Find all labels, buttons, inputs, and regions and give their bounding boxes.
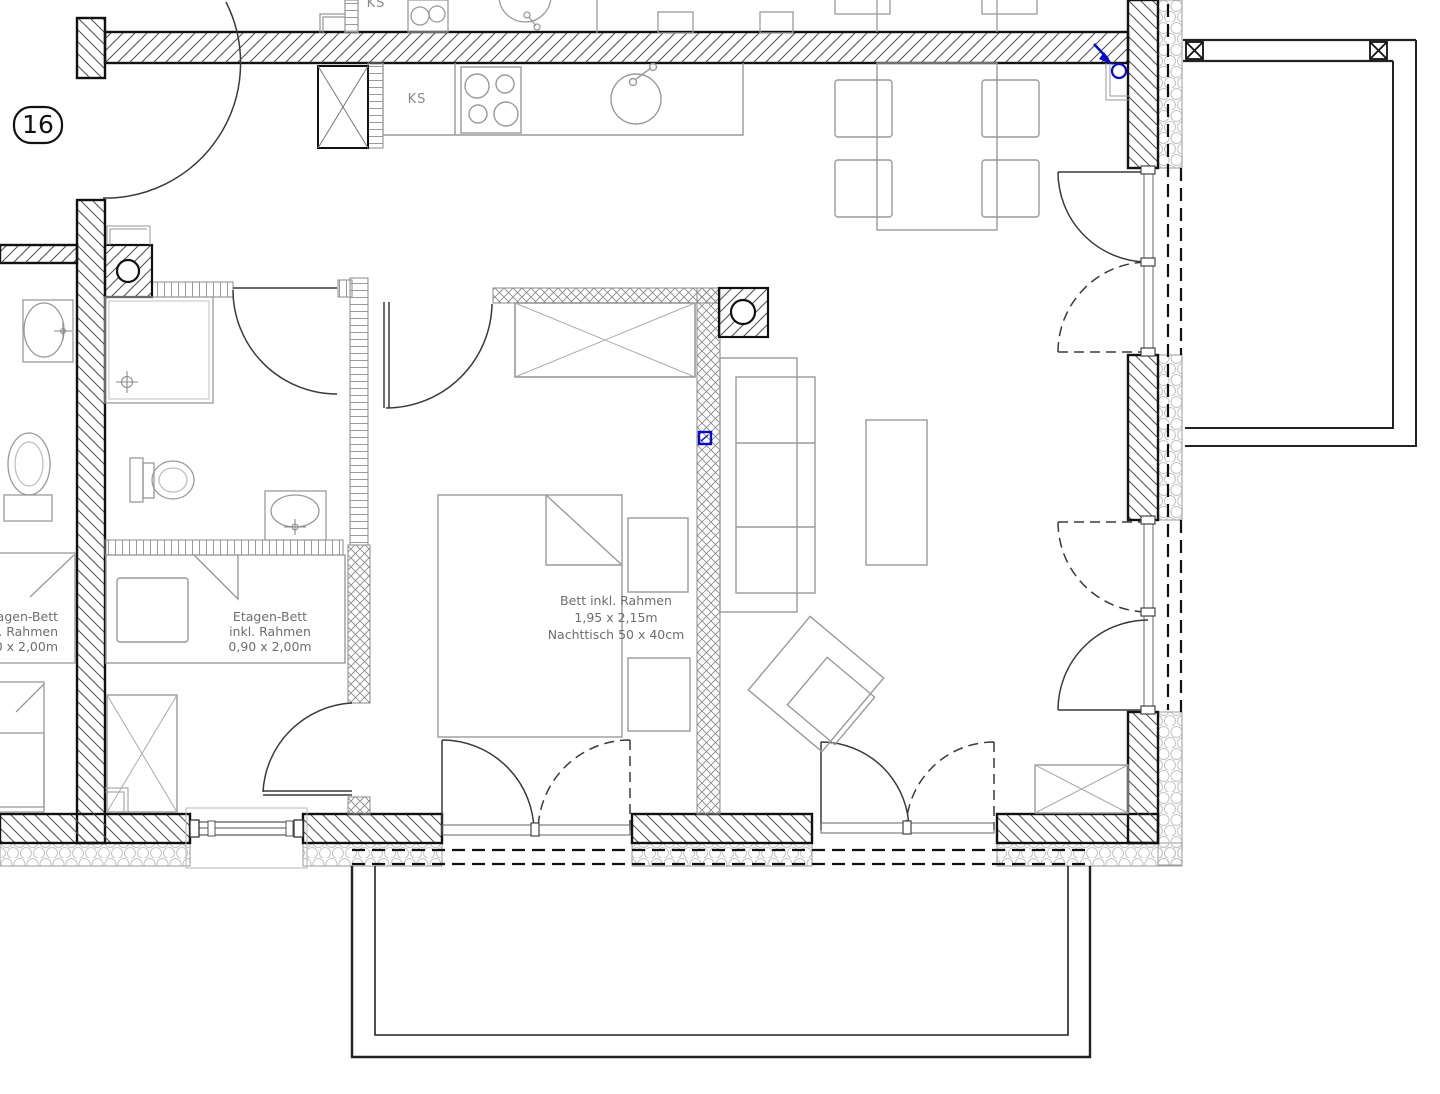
insulation-bottom-1 xyxy=(0,843,190,866)
svg-text:1,95 x 2,15m: 1,95 x 2,15m xyxy=(574,610,657,625)
svg-text:inkl. Rahmen: inkl. Rahmen xyxy=(0,624,58,639)
window-post-left xyxy=(190,820,199,837)
wall-right-1 xyxy=(1128,0,1158,168)
french-door-2-mullion xyxy=(903,821,911,834)
partition-bedroom-top xyxy=(493,288,720,303)
insulation-bottom-3 xyxy=(632,843,812,866)
window-mullion-1 xyxy=(208,821,215,836)
partition-bath-bottom xyxy=(105,540,343,555)
right-door-a-jamb-mid xyxy=(1141,258,1155,266)
right-door-b-jamb-top xyxy=(1141,516,1155,524)
svg-text:0,90 x 2,00m: 0,90 x 2,00m xyxy=(228,639,311,654)
right-door-b-jamb-bot xyxy=(1141,706,1155,714)
insulation-bottom-4 xyxy=(997,843,1182,866)
right-door-a-jamb-bot xyxy=(1141,348,1155,356)
neighbor-room-label: Etagen-Bett inkl. Rahmen 0,90 x 2,00m xyxy=(0,609,58,654)
wall-right-3 xyxy=(1128,712,1158,843)
tall-cabinet-strip xyxy=(368,63,383,148)
svg-text:Etagen-Bett: Etagen-Bett xyxy=(233,609,307,624)
upper-cabinet-strip xyxy=(345,0,358,33)
partition-bedroom-right xyxy=(697,288,720,814)
wall-right-2 xyxy=(1128,355,1158,520)
floor-plan: 16 KS KS Bett inkl. Rahmen 1,95 x 2,15m … xyxy=(0,0,1440,1094)
svg-text:Etagen-Bett: Etagen-Bett xyxy=(0,609,58,624)
kitchen-ks-label-upper: KS xyxy=(367,0,386,11)
insulation-bottom-2 xyxy=(303,843,442,866)
window-post-right xyxy=(294,820,303,837)
svg-text:Bett inkl. Rahmen: Bett inkl. Rahmen xyxy=(560,593,672,608)
right-door-b-jamb-mid xyxy=(1141,608,1155,616)
unit-badge-number: 16 xyxy=(22,110,54,139)
partition-mid-lower xyxy=(348,545,370,703)
wall-bottom-2 xyxy=(303,814,442,843)
window-mullion-2 xyxy=(286,821,293,836)
insulation-right-2 xyxy=(1158,355,1182,520)
wall-entry-pillar xyxy=(77,18,105,78)
svg-text:inkl. Rahmen: inkl. Rahmen xyxy=(229,624,311,639)
wall-left-party xyxy=(77,200,105,843)
shaft-pipe-icon-2 xyxy=(731,300,755,324)
french-door-1-mullion xyxy=(531,823,539,836)
wall-bottom-3 xyxy=(632,814,812,843)
kitchen-ks-label: KS xyxy=(408,92,427,107)
svg-text:0,90 x 2,00m: 0,90 x 2,00m xyxy=(0,639,58,654)
partition-bath-top xyxy=(152,282,233,297)
wall-top xyxy=(105,32,1128,63)
insulation-right-3 xyxy=(1158,712,1182,865)
insulation-right-1 xyxy=(1158,0,1182,168)
partition-mid-upper xyxy=(350,278,368,545)
kids-room-label: Etagen-Bett inkl. Rahmen 0,90 x 2,00m xyxy=(228,609,311,654)
svg-text:Nachttisch 50 x 40cm: Nachttisch 50 x 40cm xyxy=(548,627,685,642)
wall-bottom-1 xyxy=(0,814,190,843)
right-door-a-jamb-top xyxy=(1141,166,1155,174)
shaft-pipe-icon xyxy=(117,260,139,282)
partition-mid-stub xyxy=(348,797,370,814)
wall-left-stub xyxy=(0,245,77,263)
